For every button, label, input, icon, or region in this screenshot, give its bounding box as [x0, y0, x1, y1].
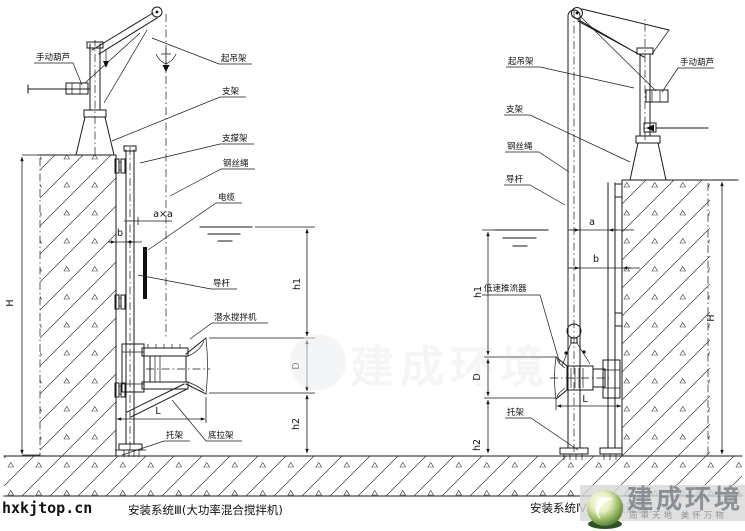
winch-handle: [28, 85, 90, 93]
left-wall: [38, 155, 116, 456]
label-support-frame: 支撑架: [222, 133, 248, 144]
mixer-propeller: [186, 338, 208, 394]
label-guide-rod: 导杆: [213, 278, 231, 289]
rail-lines: [608, 183, 615, 448]
label-support: 支架: [222, 86, 240, 97]
dim-b-label: b: [117, 228, 123, 239]
crane-pedestal: [630, 143, 666, 180]
ghost-brand-text: 建成环境: [350, 342, 550, 393]
dim-h2-label: h2: [472, 439, 483, 451]
label-wire-rope: 钢丝绳: [507, 141, 533, 152]
right-wall-rail: [600, 183, 622, 460]
boom-braces: [85, 30, 147, 103]
engineering-drawing-page: H h1 D h2 L a×a b 手动葫芦 起吊架 支架: [0, 0, 745, 531]
label-low-speed-propeller: 低速推流器: [484, 283, 527, 294]
site-url: hxkjtop.cn: [2, 499, 92, 517]
rail-flange-mid: [615, 313, 622, 326]
power-cable: [143, 247, 147, 299]
label-submersible-mixer: 潜水搅拌机: [214, 312, 257, 323]
dim-h2-label: h2: [291, 418, 302, 430]
label-hand-hoist: 手动葫芦: [36, 52, 70, 63]
right-flow-propeller-unit: [550, 357, 620, 399]
left-caption: 安装系统Ⅲ(大功率混合搅拌机): [128, 503, 283, 517]
label-bracket: 托架: [166, 430, 184, 441]
left-diagram: H h1 D h2 L a×a b 手动葫芦 起吊架 支架: [5, 7, 315, 457]
pulley-pin: [156, 11, 159, 14]
label-hand-hoist: 手动葫芦: [680, 57, 714, 68]
small-hook-icon: [103, 50, 109, 68]
brand-tagline: 周审天地 美怀万物: [629, 510, 727, 521]
dim-axa-label: a×a: [153, 209, 173, 220]
label-support: 支架: [506, 104, 524, 115]
boom-braces: [581, 17, 669, 91]
hook-icon: [156, 48, 176, 72]
dim-b-label: b: [593, 254, 599, 265]
label-lifting-frame: 起吊架: [221, 54, 247, 64]
dim-h1-label: h1: [473, 286, 484, 298]
label-bottom-tie: 底拉架: [208, 430, 234, 441]
dim-H-label: H: [5, 299, 16, 306]
watermark-center: 建成环境: [290, 334, 550, 393]
rail-carriage: [603, 360, 620, 398]
right-wall: [622, 180, 738, 456]
dim-L-label: L: [155, 406, 161, 417]
left-water-level-icon: [200, 227, 252, 241]
crane-boom: [572, 9, 669, 57]
right-davit-crane: [572, 8, 709, 181]
watermark-bottom-right: 建成环境 周审天地 美怀万物: [580, 484, 745, 529]
ghost-logo-icon: [290, 334, 346, 390]
label-wire-rope: 钢丝绳: [223, 158, 249, 169]
right-water-level-icon: [495, 230, 548, 246]
dim-H-label: H: [706, 314, 717, 321]
label-lifting-frame: 起吊架: [508, 57, 534, 67]
label-guide-rod: 导杆: [506, 174, 524, 185]
brand-logo-icon: [587, 490, 623, 529]
label-cable: 电缆: [218, 192, 236, 203]
dim-L-label: L: [582, 394, 588, 405]
rail-flange-top: [615, 184, 622, 197]
dim-a-label: a: [589, 217, 595, 228]
hand-winch: [646, 90, 668, 102]
label-bracket: 托架: [507, 407, 525, 418]
mixer-top-plate: [142, 348, 188, 356]
pole-base: [115, 444, 146, 457]
lifting-tackle: [562, 324, 590, 366]
left-wall-hatch: [40, 155, 116, 456]
pedestal-cap: [636, 136, 660, 143]
dim-h1-label: h1: [292, 278, 303, 290]
pedestal-cap: [84, 110, 106, 117]
right-wall-hatch: [622, 180, 710, 456]
mixer-installation-drawing: H h1 D h2 L a×a b 手动葫芦 起吊架 支架: [0, 0, 745, 531]
left-submersible-mixer: [122, 338, 210, 417]
